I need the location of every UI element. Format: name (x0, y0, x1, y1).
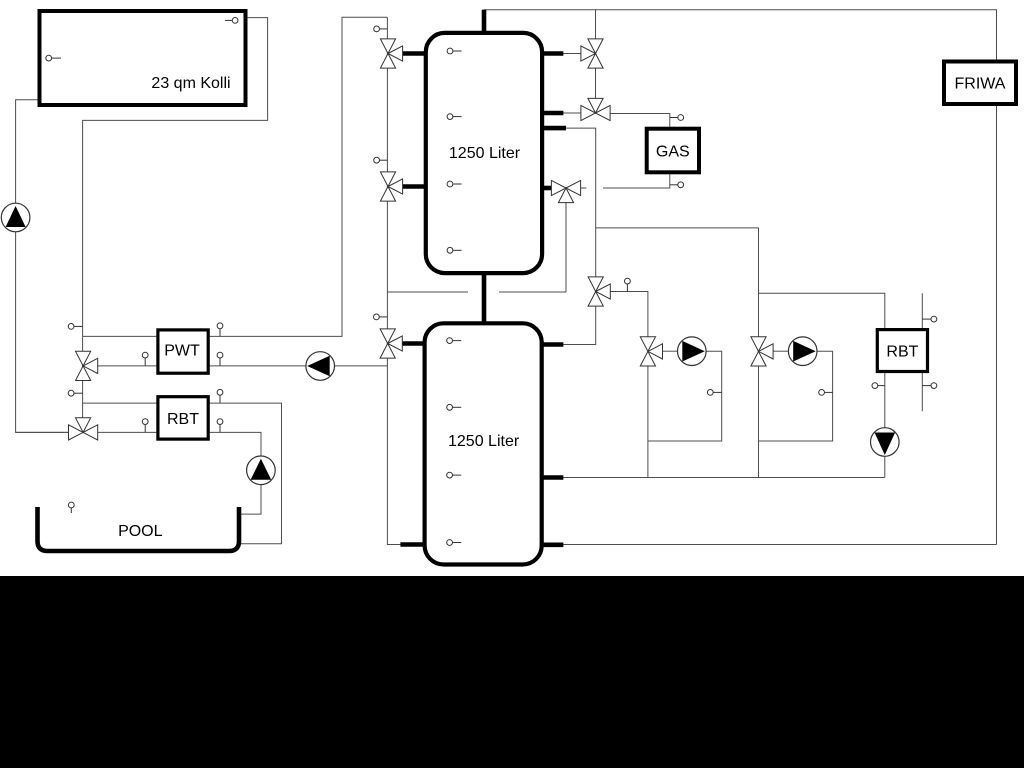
svg-text:1250 Liter: 1250 Liter (448, 433, 520, 450)
svg-text:23 qm Kolli: 23 qm Kolli (151, 75, 230, 92)
svg-text:POOL: POOL (118, 523, 163, 540)
svg-text:1250 Liter: 1250 Liter (449, 145, 521, 162)
svg-text:RBT: RBT (167, 411, 199, 428)
svg-text:PWT: PWT (164, 343, 200, 360)
svg-text:RBT: RBT (886, 343, 918, 360)
svg-text:FRIWA: FRIWA (955, 76, 1006, 93)
svg-text:GAS: GAS (656, 143, 690, 160)
